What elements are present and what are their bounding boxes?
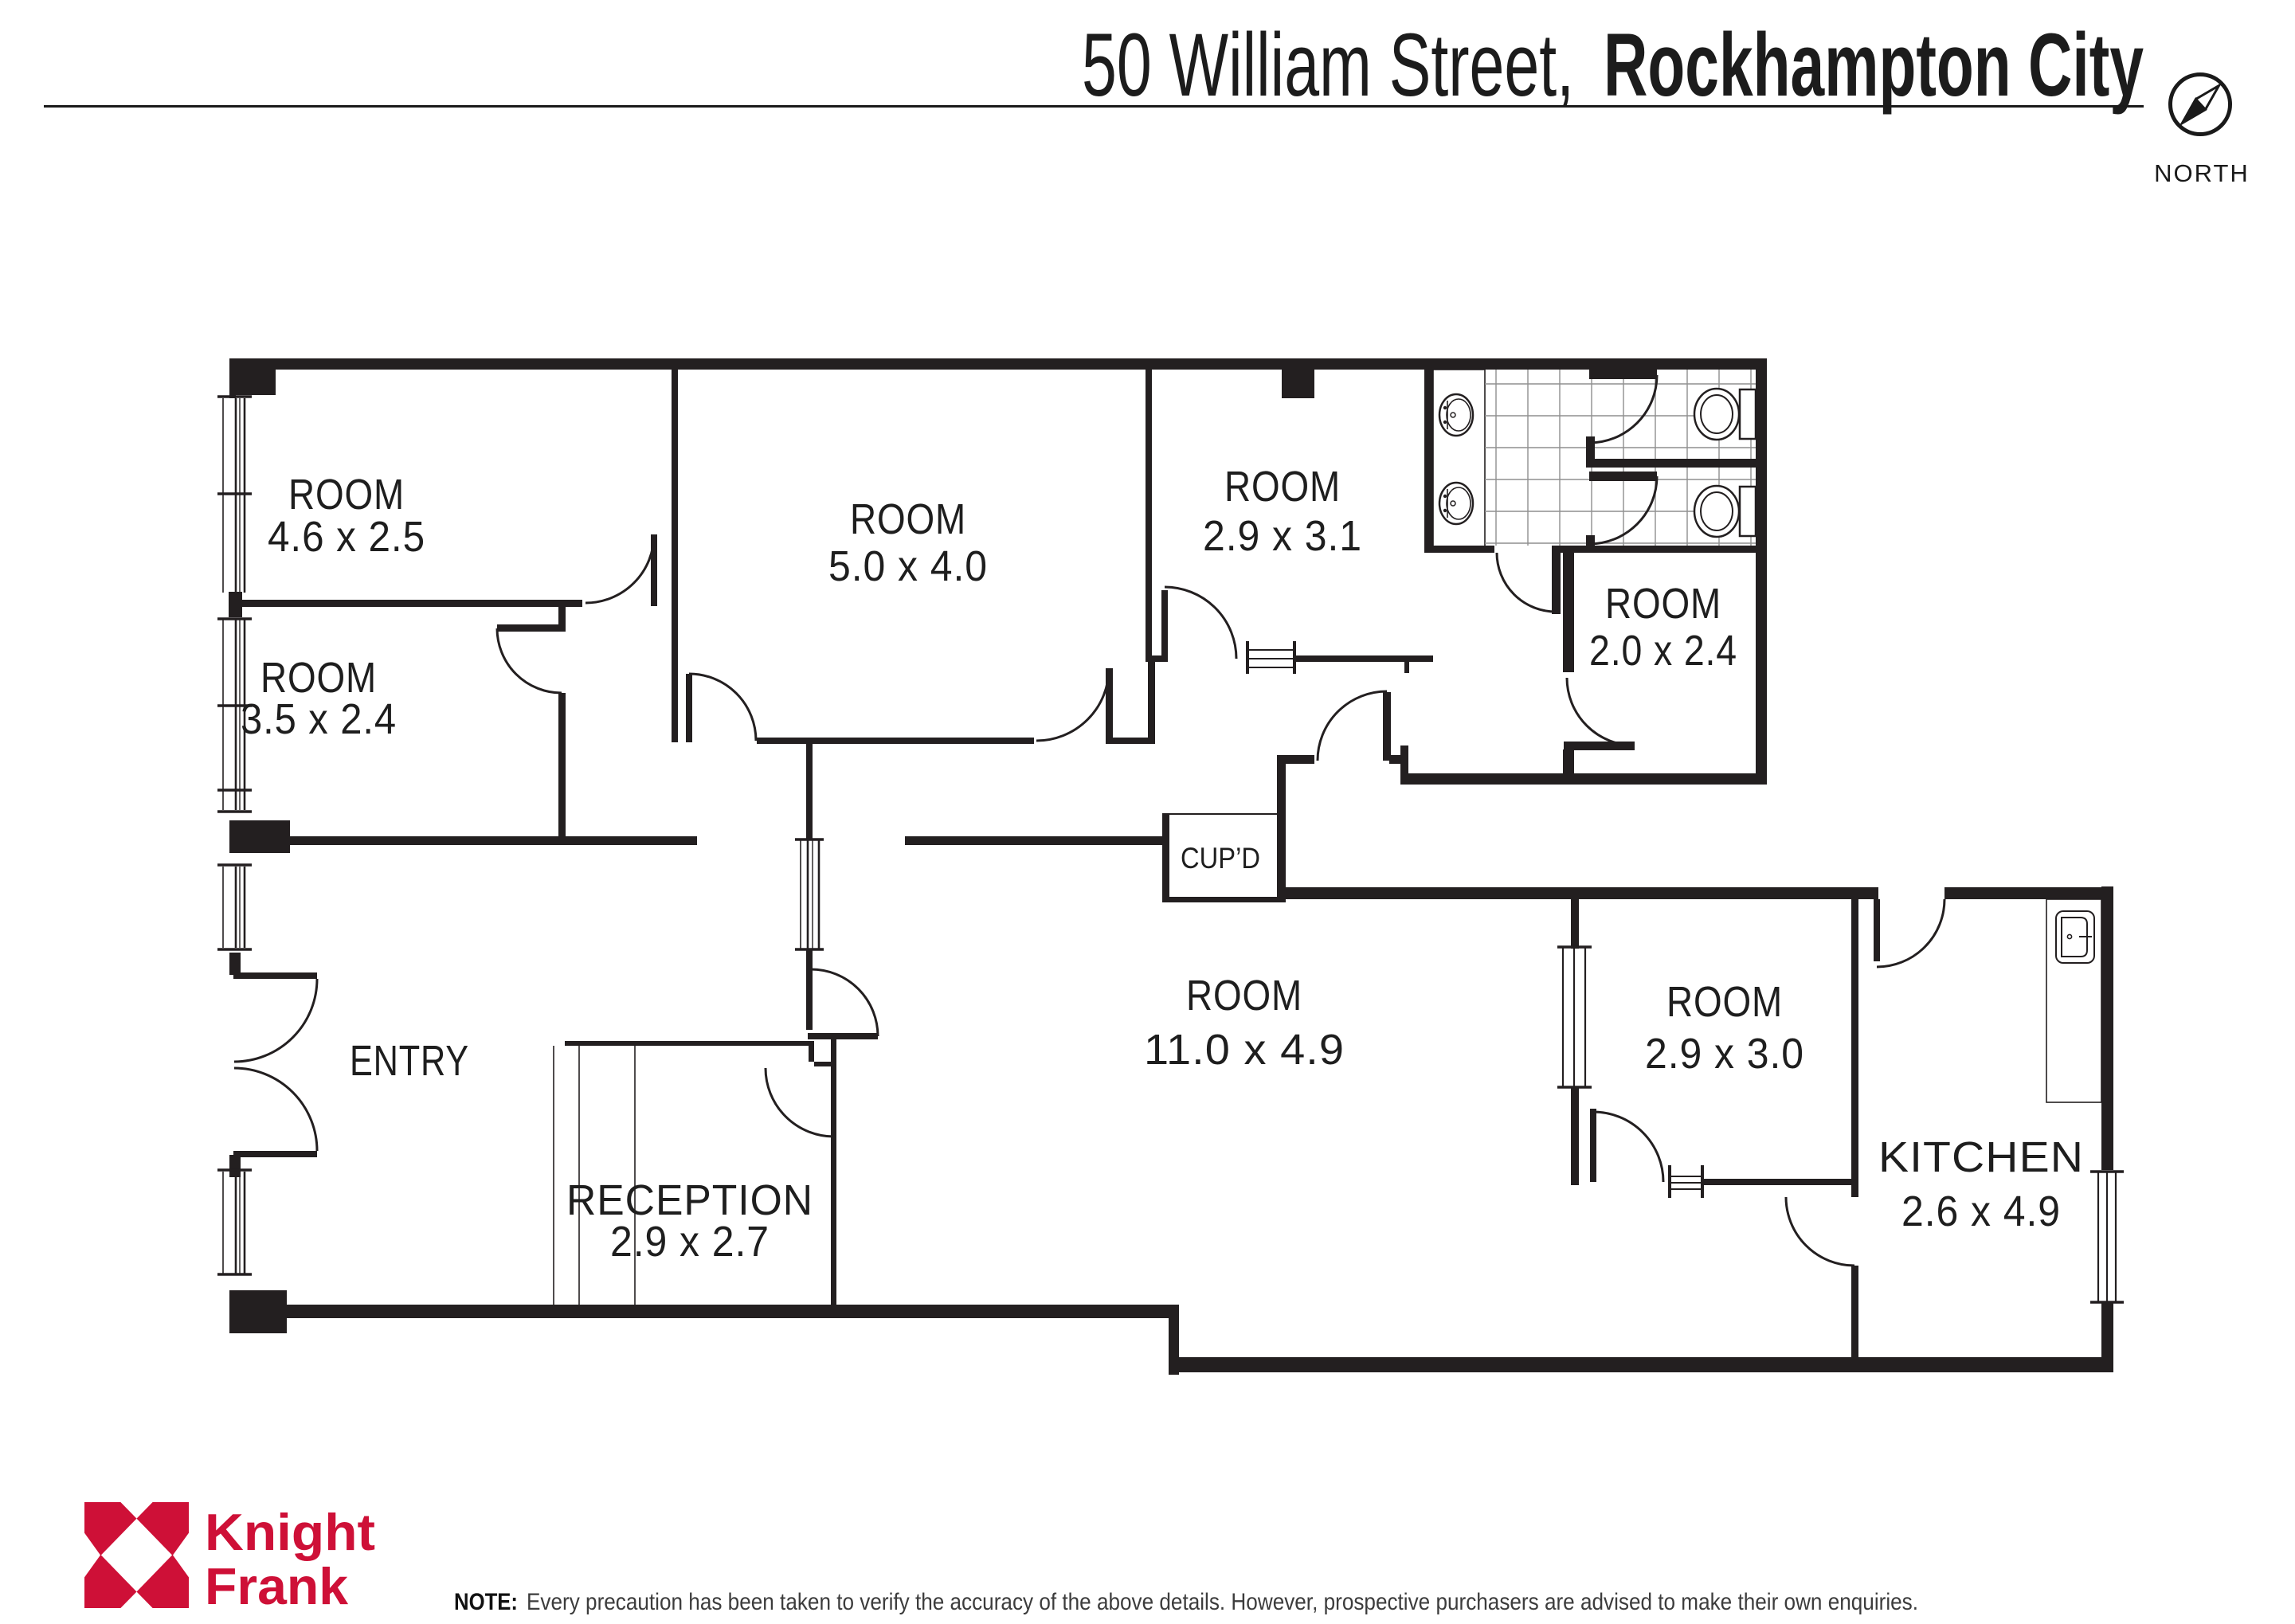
svg-text:KITCHEN: KITCHEN	[1878, 1133, 2084, 1181]
svg-text:NORTH: NORTH	[2154, 159, 2250, 187]
svg-text:ROOM: ROOM	[1666, 978, 1783, 1026]
svg-text:CUP’D: CUP’D	[1181, 842, 1260, 875]
svg-text:50 William Street,: 50 William Street,	[1082, 15, 1592, 115]
svg-text:NOTE:: NOTE:	[454, 1589, 518, 1615]
svg-text:2.9 x 2.7: 2.9 x 2.7	[610, 1218, 770, 1266]
svg-text:ROOM: ROOM	[1605, 580, 1721, 628]
svg-text:11.0 x 4.9: 11.0 x 4.9	[1144, 1026, 1345, 1074]
svg-text:ROOM: ROOM	[850, 495, 966, 543]
svg-text:ROOM: ROOM	[288, 471, 405, 519]
svg-text:ROOM: ROOM	[260, 654, 377, 702]
svg-text:3.5 x 2.4: 3.5 x 2.4	[241, 695, 397, 743]
svg-text:2.0 x 2.4: 2.0 x 2.4	[1589, 627, 1737, 675]
svg-text:ROOM: ROOM	[1186, 972, 1302, 1019]
svg-text:RECEPTION: RECEPTION	[566, 1176, 813, 1224]
svg-text:ENTRY: ENTRY	[350, 1037, 469, 1085]
svg-text:Every precaution has been take: Every precaution has been taken to verif…	[527, 1589, 1918, 1615]
svg-text:2.6 x 4.9: 2.6 x 4.9	[1901, 1188, 2061, 1235]
svg-text:Knight: Knight	[205, 1503, 375, 1561]
svg-text:4.6 x 2.5: 4.6 x 2.5	[268, 513, 425, 561]
svg-text:ROOM: ROOM	[1224, 463, 1341, 511]
svg-text:2.9 x 3.0: 2.9 x 3.0	[1645, 1030, 1804, 1078]
svg-text:Rockhampton City: Rockhampton City	[1604, 15, 2144, 115]
svg-text:Frank: Frank	[205, 1557, 349, 1615]
svg-text:5.0 x 4.0: 5.0 x 4.0	[828, 542, 988, 590]
svg-text:2.9 x 3.1: 2.9 x 3.1	[1203, 512, 1362, 560]
